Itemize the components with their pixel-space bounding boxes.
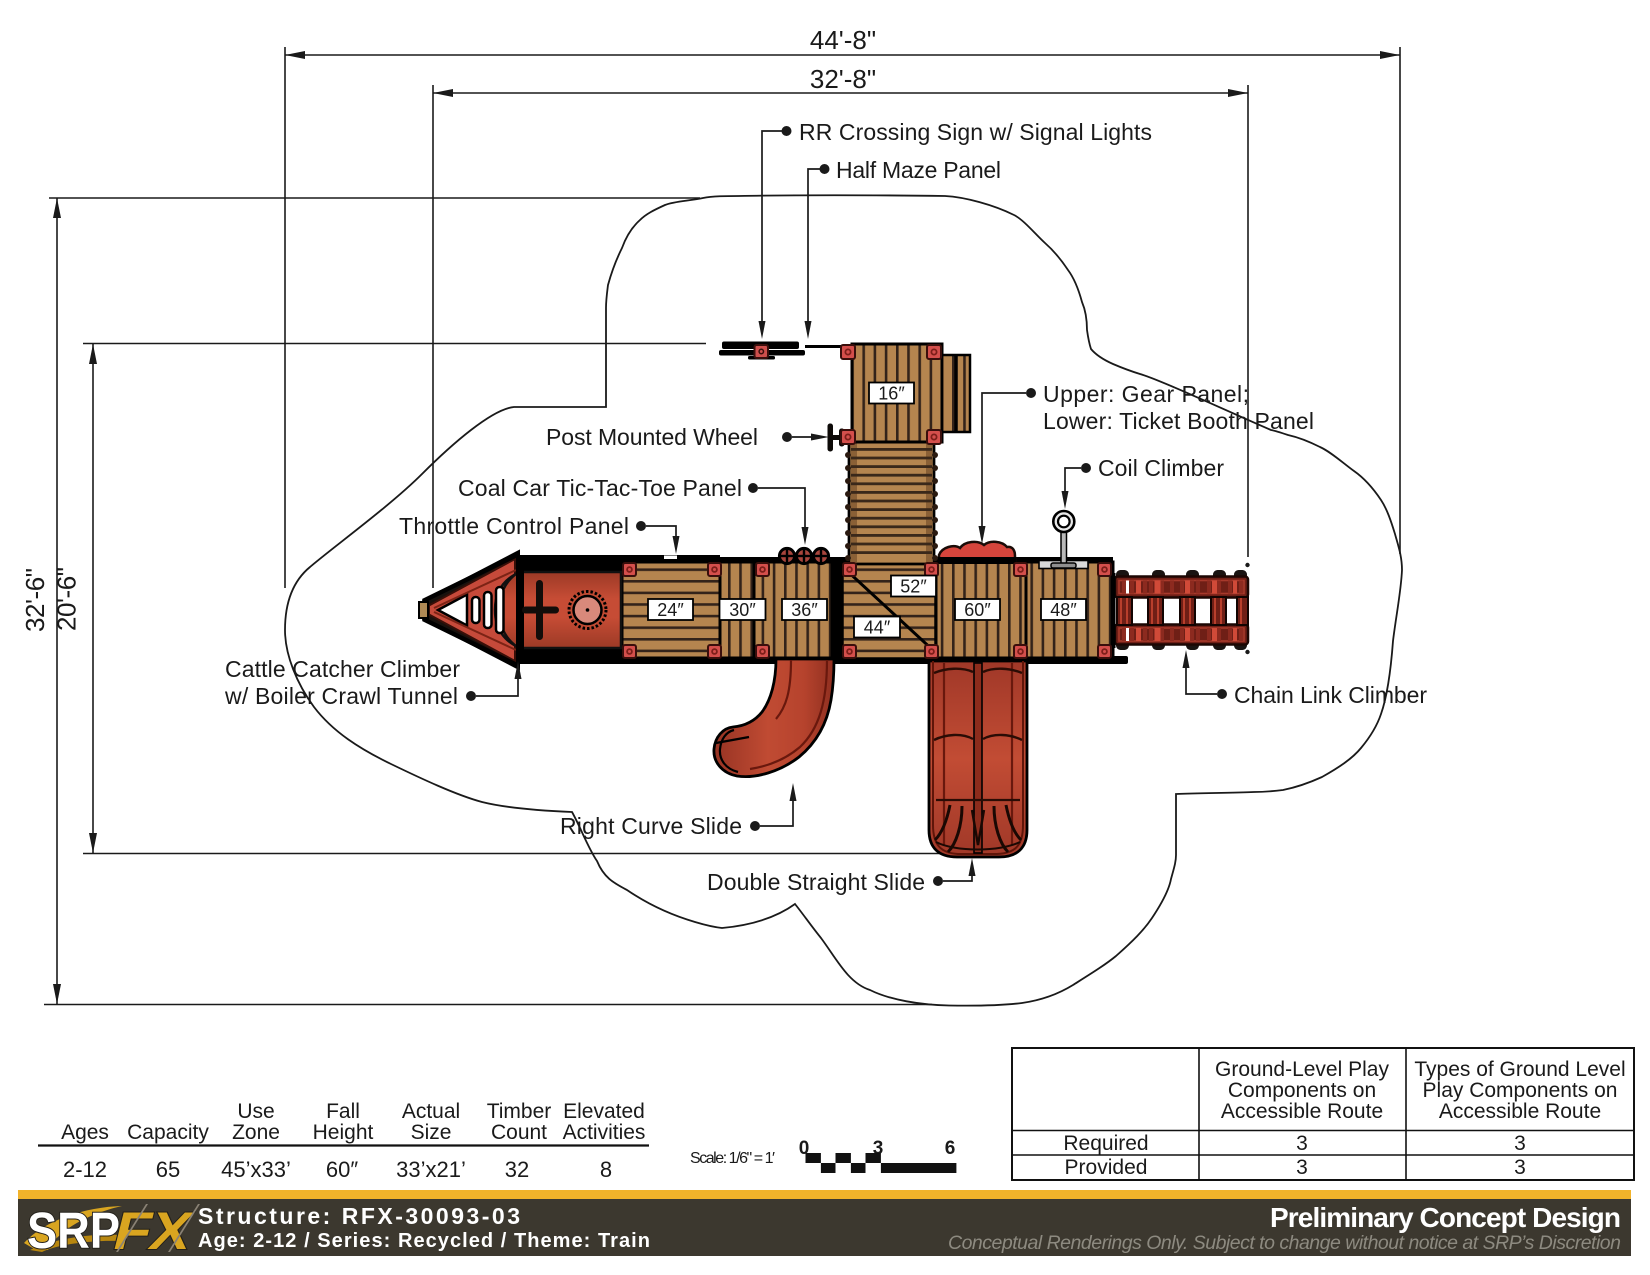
svg-text:Lower: Ticket Booth Panel: Lower: Ticket Booth Panel	[1043, 408, 1314, 434]
svg-text:3: 3	[1514, 1156, 1526, 1179]
svg-text:w/ Boiler Crawl Tunnel: w/ Boiler Crawl Tunnel	[224, 683, 458, 709]
svg-text:60″: 60″	[326, 1157, 358, 1182]
svg-text:65: 65	[156, 1157, 180, 1182]
svg-text:FX: FX	[108, 1202, 199, 1261]
svg-text:Capacity: Capacity	[127, 1121, 209, 1144]
svg-text:Coal Car Tic-Tac-Toe Panel: Coal Car Tic-Tac-Toe Panel	[458, 475, 742, 501]
svg-text:45’x33’: 45’x33’	[221, 1157, 291, 1182]
svg-text:3: 3	[1296, 1156, 1308, 1179]
svg-text:Accessible Route: Accessible Route	[1439, 1100, 1601, 1123]
svg-text:Timber: Timber	[487, 1100, 552, 1123]
svg-text:Size: Size	[411, 1121, 452, 1144]
svg-text:Ages: Ages	[61, 1121, 109, 1144]
svg-text:Cattle Catcher Climber: Cattle Catcher Climber	[225, 656, 460, 682]
svg-text:Post Mounted Wheel: Post Mounted Wheel	[546, 424, 758, 450]
svg-text:RR Crossing Sign w/ Signal Lig: RR Crossing Sign w/ Signal Lights	[799, 119, 1152, 145]
svg-text:20'-6": 20'-6"	[51, 567, 81, 631]
svg-text:44'-8": 44'-8"	[810, 25, 876, 55]
svg-text:Conceptual Renderings Only. Su: Conceptual Renderings Only. Subject to c…	[948, 1232, 1621, 1254]
svg-text:Coil Climber: Coil Climber	[1098, 455, 1224, 481]
svg-text:52″: 52″	[900, 577, 927, 597]
svg-text:44″: 44″	[864, 618, 891, 638]
svg-text:6: 6	[945, 1138, 956, 1159]
svg-text:Ground-Level Play: Ground-Level Play	[1215, 1058, 1389, 1081]
svg-text:24″: 24″	[657, 600, 684, 620]
svg-text:Double Straight Slide: Double Straight Slide	[707, 869, 925, 895]
svg-text:Zone: Zone	[232, 1121, 280, 1144]
svg-text:Count: Count	[491, 1121, 547, 1144]
svg-text:Fall: Fall	[326, 1100, 360, 1123]
svg-text:32'-8": 32'-8"	[810, 64, 876, 94]
svg-text:Types of Ground Level: Types of Ground Level	[1414, 1058, 1625, 1081]
svg-text:Scale: 1/6" = 1′: Scale: 1/6" = 1′	[690, 1150, 775, 1167]
svg-text:60″: 60″	[964, 600, 991, 620]
svg-text:Height: Height	[313, 1121, 374, 1144]
svg-text:Upper: Gear Panel;: Upper: Gear Panel;	[1043, 381, 1249, 407]
svg-text:Throttle Control Panel: Throttle Control Panel	[399, 513, 629, 539]
svg-text:30″: 30″	[729, 600, 756, 620]
svg-text:3: 3	[1296, 1132, 1308, 1155]
svg-text:Right Curve Slide: Right Curve Slide	[560, 813, 742, 839]
svg-text:Required: Required	[1063, 1132, 1148, 1155]
svg-text:Activities: Activities	[563, 1121, 646, 1144]
svg-text:Half Maze Panel: Half Maze Panel	[836, 157, 1001, 183]
svg-text:Provided: Provided	[1065, 1156, 1148, 1179]
svg-text:32'-6": 32'-6"	[20, 568, 50, 632]
svg-text:Age: 2-12 / Series: Recycled /: Age: 2-12 / Series: Recycled / Theme: Tr…	[198, 1230, 650, 1252]
svg-text:SRP: SRP	[27, 1202, 120, 1259]
svg-text:36″: 36″	[791, 600, 818, 620]
svg-text:Actual: Actual	[402, 1100, 460, 1123]
svg-text:33’x21’: 33’x21’	[396, 1157, 466, 1182]
svg-text:8: 8	[600, 1157, 612, 1182]
svg-text:48″: 48″	[1050, 600, 1077, 620]
svg-text:Play Components on: Play Components on	[1423, 1079, 1618, 1102]
svg-text:32: 32	[505, 1157, 529, 1182]
svg-text:Chain Link Climber: Chain Link Climber	[1234, 682, 1427, 708]
svg-text:Elevated: Elevated	[563, 1100, 645, 1123]
svg-text:Preliminary Concept Design: Preliminary Concept Design	[1270, 1202, 1621, 1233]
svg-text:2-12: 2-12	[63, 1157, 107, 1182]
svg-text:Accessible Route: Accessible Route	[1221, 1100, 1383, 1123]
svg-text:Components on: Components on	[1228, 1079, 1376, 1102]
svg-text:16″: 16″	[878, 384, 905, 404]
svg-text:Use: Use	[237, 1100, 274, 1123]
svg-text:3: 3	[1514, 1132, 1526, 1155]
